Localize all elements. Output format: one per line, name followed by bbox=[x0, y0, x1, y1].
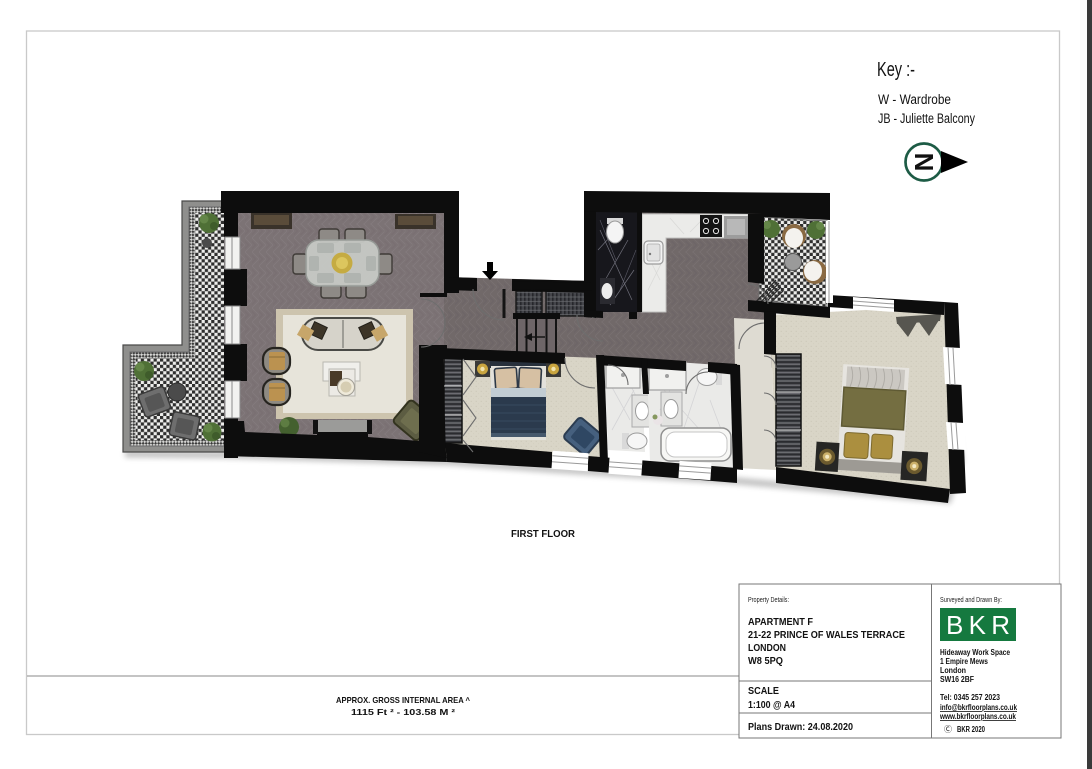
svg-text:Ⓒ: Ⓒ bbox=[944, 725, 952, 734]
svg-text:LONDON: LONDON bbox=[748, 643, 786, 654]
svg-text:N: N bbox=[909, 153, 939, 172]
svg-text:Hideaway Work Space: Hideaway Work Space bbox=[940, 648, 1010, 657]
svg-text:BKR 2020: BKR 2020 bbox=[957, 725, 985, 734]
svg-text:JB - Juliette Balcony: JB - Juliette Balcony bbox=[878, 111, 975, 126]
svg-text:Key :-: Key :- bbox=[877, 59, 915, 81]
svg-text:Property Details:: Property Details: bbox=[748, 597, 789, 604]
svg-text:W - Wardrobe: W - Wardrobe bbox=[878, 92, 951, 107]
svg-text:London: London bbox=[940, 666, 966, 675]
svg-text:FIRST FLOOR: FIRST FLOOR bbox=[511, 528, 575, 540]
svg-text:21-22 PRINCE OF WALES TERRACE: 21-22 PRINCE OF WALES TERRACE bbox=[748, 630, 905, 641]
svg-text:1:100 @ A4: 1:100 @ A4 bbox=[748, 700, 795, 711]
svg-text:W8 5PQ: W8 5PQ bbox=[748, 656, 783, 667]
svg-text:Surveyed and Drawn By:: Surveyed and Drawn By: bbox=[940, 597, 1002, 604]
svg-text:BKR: BKR bbox=[946, 610, 1010, 640]
svg-text:1115 Ft ² - 103.58 M ²: 1115 Ft ² - 103.58 M ² bbox=[351, 708, 455, 717]
svg-text:www.bkrfloorplans.co.uk: www.bkrfloorplans.co.uk bbox=[939, 712, 1016, 721]
svg-text:SW16 2BF: SW16 2BF bbox=[940, 675, 974, 684]
svg-text:1 Empire Mews: 1 Empire Mews bbox=[940, 657, 988, 666]
svg-text:APARTMENT F: APARTMENT F bbox=[748, 617, 813, 628]
svg-text:Tel: 0345 257 2023: Tel: 0345 257 2023 bbox=[940, 693, 1000, 702]
svg-text:Plans Drawn: 24.08.2020: Plans Drawn: 24.08.2020 bbox=[748, 722, 853, 733]
svg-text:APPROX. GROSS INTERNAL AREA ^: APPROX. GROSS INTERNAL AREA ^ bbox=[336, 696, 470, 705]
svg-text:info@bkrfloorplans.co.uk: info@bkrfloorplans.co.uk bbox=[940, 703, 1017, 712]
svg-text:SCALE: SCALE bbox=[748, 686, 779, 697]
